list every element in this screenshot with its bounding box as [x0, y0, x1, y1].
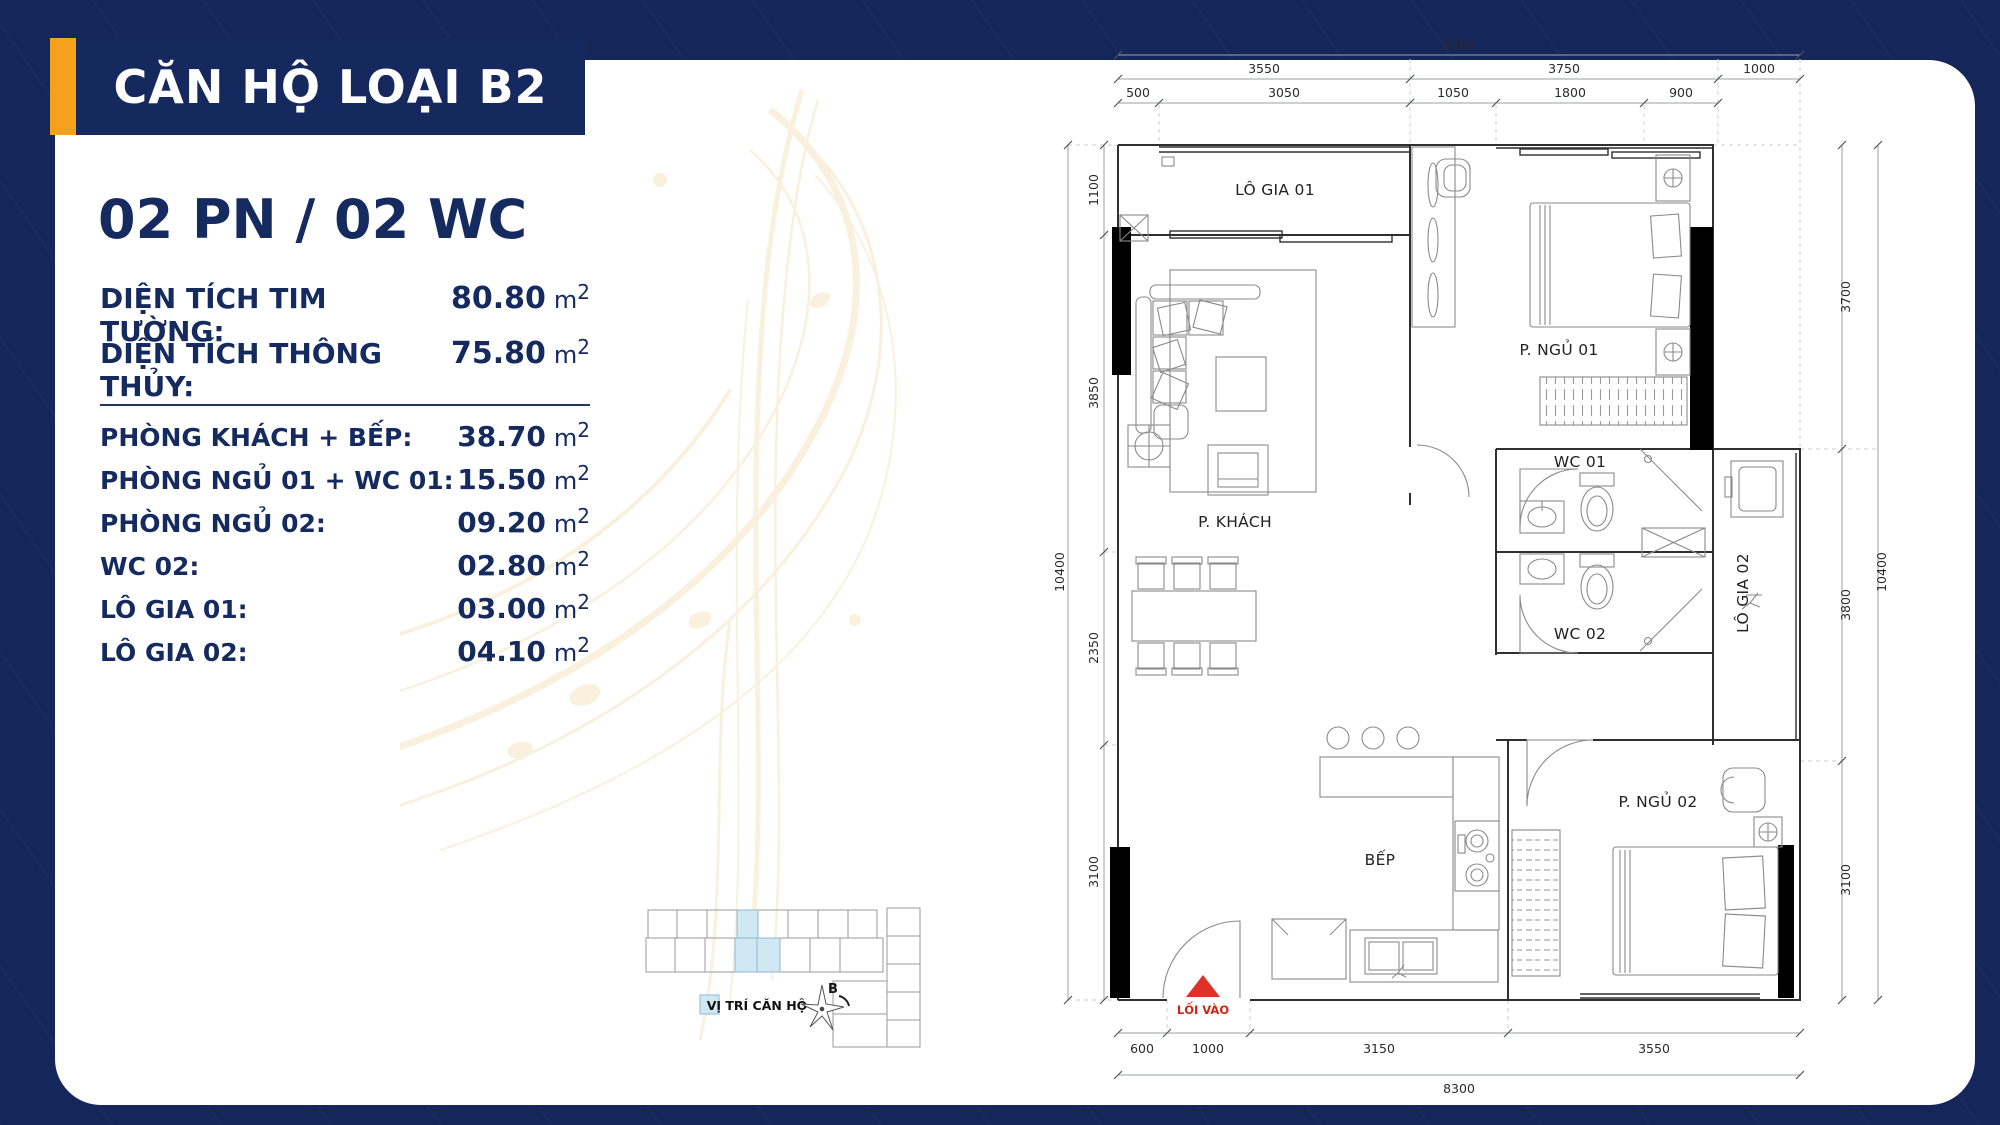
room-label-living: P. KHÁCH — [1198, 512, 1272, 531]
svg-text:10400: 10400 — [1874, 552, 1889, 592]
svg-text:1000: 1000 — [1743, 61, 1775, 76]
dim-left: 10400 1100 3850 2350 3100 — [1052, 141, 1108, 1004]
spec-value: 03.00m2 — [457, 590, 590, 625]
banner-background: CĂN HỘ LOẠI B2 — [76, 38, 585, 135]
locator-svg: VỊ TRÍ CĂN HỘ B — [630, 885, 940, 1065]
svg-text:3550: 3550 — [1248, 61, 1280, 76]
entrance-arrow-icon — [1186, 975, 1220, 997]
svg-text:3800: 3800 — [1838, 589, 1853, 621]
spec-value: 04.10m2 — [457, 633, 590, 668]
svg-text:2350: 2350 — [1086, 632, 1101, 664]
spec-label: PHÒNG KHÁCH + BẾP: — [100, 423, 457, 452]
room-labels: LÔ GIA 01 P. NGỦ 01 WC 01 P. KHÁCH WC 02… — [1198, 180, 1752, 869]
spec-value: 15.50m2 — [457, 461, 590, 496]
locator-legend: VỊ TRÍ CĂN HỘ — [700, 995, 807, 1014]
svg-text:3550: 3550 — [1638, 1041, 1670, 1056]
svg-text:900: 900 — [1669, 85, 1693, 100]
spec-row: PHÒNG KHÁCH + BẾP: 38.70m2 — [100, 418, 590, 461]
floor-plan: 8300 3550 3750 1000 500 3050 1050 1800 9… — [1020, 35, 1910, 1104]
spec-row: PHÒNG NGỦ 01 + WC 01: 15.50m2 — [100, 461, 590, 504]
entrance-label: LỐI VÀO — [1177, 1000, 1229, 1017]
room-label-kitchen: BẾP — [1365, 848, 1396, 869]
dim-top: 8300 3550 3750 1000 500 3050 1050 1800 9… — [1114, 37, 1804, 107]
spec-label: PHÒNG NGỦ 02: — [100, 509, 457, 538]
spec-row: LÔ GIA 02: 04.10m2 — [100, 633, 590, 676]
svg-text:1800: 1800 — [1554, 85, 1586, 100]
spec-row: PHÒNG NGỦ 02: 09.20m2 — [100, 504, 590, 547]
compass-icon: B — [801, 982, 849, 1030]
svg-text:600: 600 — [1130, 1041, 1154, 1056]
svg-text:3750: 3750 — [1548, 61, 1580, 76]
spec-label: DIỆN TÍCH THÔNG THỦY: — [100, 337, 451, 403]
living-room-furniture — [1128, 270, 1316, 495]
building-locator: VỊ TRÍ CĂN HỘ B — [630, 885, 940, 1069]
highlighted-units — [735, 910, 780, 972]
entrance-marker: LỐI VÀO — [1177, 975, 1229, 1017]
spec-row: DIỆN TÍCH TIM TƯỜNG: 80.80m2 — [100, 280, 590, 335]
spec-value: 02.80m2 — [457, 547, 590, 582]
room-label-logia2: LÔ GIA 02 — [1733, 553, 1752, 633]
spec-divider — [100, 404, 590, 406]
compass-label: B — [828, 982, 838, 997]
spec-label: PHÒNG NGỦ 01 + WC 01: — [100, 466, 457, 495]
svg-text:3850: 3850 — [1086, 377, 1101, 409]
room-label-logia1: LÔ GIA 01 — [1235, 180, 1315, 199]
extension-lines — [1068, 59, 1878, 1033]
spec-row: DIỆN TÍCH THÔNG THỦY: 75.80m2 — [100, 335, 590, 390]
room-label-wc1: WC 01 — [1554, 453, 1606, 471]
svg-text:1100: 1100 — [1086, 174, 1101, 206]
room-label-bedroom1: P. NGỦ 01 — [1519, 339, 1598, 359]
svg-text:1050: 1050 — [1437, 85, 1469, 100]
spec-label: LÔ GIA 02: — [100, 638, 457, 667]
dim-right: 3700 3800 3100 10400 — [1838, 141, 1889, 1004]
spec-list: DIỆN TÍCH TIM TƯỜNG: 80.80m2 DIỆN TÍCH T… — [100, 280, 590, 676]
svg-text:3050: 3050 — [1268, 85, 1300, 100]
banner-accent-bar — [50, 38, 76, 135]
svg-text:500: 500 — [1126, 85, 1150, 100]
spec-label: LÔ GIA 01: — [100, 595, 457, 624]
title-banner: CĂN HỘ LOẠI B2 — [50, 38, 585, 135]
spec-value: 75.80m2 — [451, 335, 590, 371]
floor-plan-svg: 8300 3550 3750 1000 500 3050 1050 1800 9… — [1020, 35, 1910, 1100]
room-label-wc2: WC 02 — [1554, 625, 1606, 643]
svg-text:3700: 3700 — [1838, 281, 1853, 313]
wc2-fixtures — [1520, 528, 1705, 651]
spec-row: LÔ GIA 01: 03.00m2 — [100, 590, 590, 633]
room-label-bedroom2: P. NGỦ 02 — [1618, 791, 1697, 811]
svg-text:10400: 10400 — [1052, 552, 1067, 592]
bedroom1-furniture — [1412, 147, 1690, 425]
dim-bottom: 600 1000 3150 3550 8300 — [1114, 1029, 1804, 1096]
wc1-fixtures — [1520, 449, 1702, 533]
spec-value: 38.70m2 — [457, 418, 590, 453]
spec-value: 80.80m2 — [451, 280, 590, 316]
dining-set — [1132, 557, 1256, 675]
svg-text:1000: 1000 — [1192, 1041, 1224, 1056]
spec-value: 09.20m2 — [457, 504, 590, 539]
svg-text:8300: 8300 — [1443, 37, 1475, 52]
spec-row: WC 02: 02.80m2 — [100, 547, 590, 590]
legend-label: VỊ TRÍ CĂN HỘ — [707, 998, 808, 1013]
svg-text:3150: 3150 — [1363, 1041, 1395, 1056]
svg-text:3100: 3100 — [1086, 856, 1101, 888]
building-outline — [646, 908, 920, 1047]
svg-text:3100: 3100 — [1838, 864, 1853, 896]
brochure-page: { "title": "CĂN HỘ LOẠI B2", "subtitle":… — [0, 0, 2000, 1125]
page-title: CĂN HỘ LOẠI B2 — [113, 60, 547, 114]
svg-text:8300: 8300 — [1443, 1081, 1475, 1096]
spec-label: WC 02: — [100, 552, 457, 581]
apartment-summary: 02 PN / 02 WC — [98, 188, 527, 251]
